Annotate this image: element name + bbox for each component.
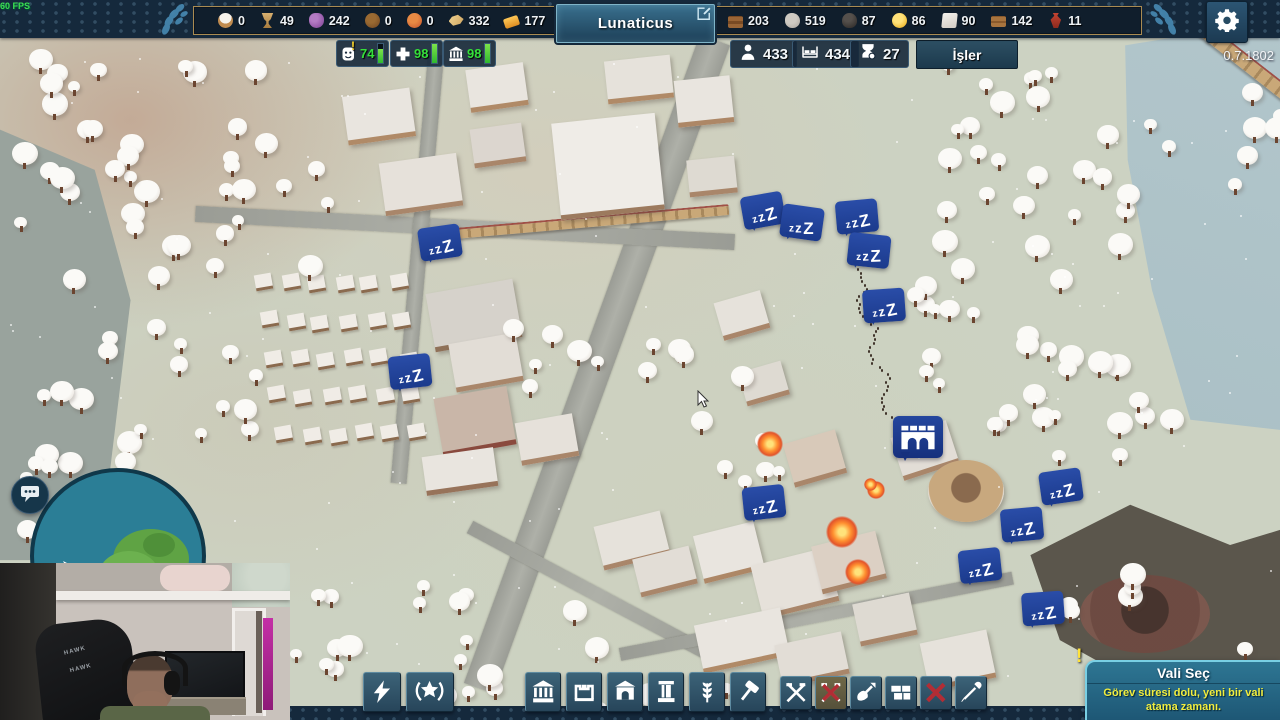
snowy-tree: [174, 338, 187, 350]
snow-speck: [645, 306, 647, 308]
market-stall: [260, 309, 280, 328]
snow-speck: [120, 397, 122, 399]
snow-speck: [418, 663, 420, 665]
sleep-marker[interactable]: zzZ: [417, 223, 463, 262]
snowy-tree: [245, 60, 268, 81]
market-stall: [254, 273, 274, 292]
snowy-tree: [298, 255, 323, 277]
snow-speck: [392, 471, 394, 473]
snowy-tree: [1107, 412, 1133, 435]
snowy-tree: [1129, 392, 1149, 410]
crowd-figure: [873, 334, 875, 337]
city-name-plate: Lunaticus: [556, 4, 715, 43]
snowy-tree: [460, 635, 473, 647]
edit-city-name-icon[interactable]: [697, 7, 711, 21]
bolt-button[interactable]: [363, 672, 401, 712]
snowy-tree: [922, 348, 941, 365]
sleep-marker[interactable]: zzZ: [1038, 467, 1084, 506]
building[interactable]: [422, 447, 499, 496]
shrine-icon: [608, 673, 642, 711]
snowy-tree: [1117, 184, 1140, 205]
snow-speck: [585, 218, 587, 220]
snow-speck: [492, 304, 494, 306]
snow-speck: [1098, 491, 1100, 493]
snow-speck: [366, 652, 368, 654]
column-button[interactable]: [648, 672, 684, 712]
resource-bricks: 142: [991, 14, 1032, 28]
building[interactable]: [783, 429, 847, 487]
market-stall: [348, 385, 368, 404]
snowy-tree: [1237, 642, 1253, 656]
bricks-icon: [991, 16, 1006, 27]
resource-value: 11: [1068, 14, 1081, 28]
building[interactable]: [379, 153, 464, 216]
fire-effect: [845, 559, 871, 585]
market-stall: [344, 348, 364, 367]
snow-speck: [597, 661, 599, 663]
laurel-decoration-icon: [150, 2, 196, 38]
snow-speck: [246, 355, 248, 357]
sleep-marker[interactable]: zzZ: [957, 547, 1002, 584]
sleep-marker[interactable]: zzZ: [846, 232, 891, 269]
crowd-figure: [860, 272, 862, 275]
crowd-figure: [879, 366, 881, 369]
snowy-tree: [42, 92, 68, 115]
snow-speck: [884, 447, 886, 449]
snowy-tree: [1025, 235, 1050, 257]
snowy-tree: [337, 635, 362, 658]
snowy-tree: [990, 91, 1016, 114]
citizens-icon: [739, 43, 757, 66]
snowy-tree: [1028, 70, 1041, 82]
market-stall: [390, 273, 410, 292]
snowy-tree: [68, 81, 81, 92]
demolish-x-icon: [921, 677, 951, 709]
snowy-tree: [1144, 119, 1157, 130]
market-stall: [290, 348, 310, 367]
snow-speck: [1051, 253, 1053, 255]
snow-speck: [896, 141, 898, 143]
snowy-tree: [919, 365, 934, 378]
resource-stone: 519: [785, 13, 826, 28]
building[interactable]: [342, 88, 416, 146]
snowy-tree: [63, 269, 86, 290]
stat-bar: [484, 43, 491, 64]
amphitheater[interactable]: [1080, 575, 1210, 653]
webcam-magenta-object: [263, 618, 273, 710]
snow-speck: [358, 200, 360, 202]
crowd-figure: [864, 284, 866, 287]
market-stall: [316, 351, 336, 370]
aqueduct-alert-marker[interactable]: [893, 416, 943, 458]
market-stall: [406, 423, 426, 442]
snowy-tree: [232, 215, 244, 226]
market-stall: [380, 423, 400, 442]
sleep-marker[interactable]: zzZ: [779, 203, 825, 242]
snow-speck: [351, 582, 353, 584]
health-panel[interactable]: 98: [390, 40, 443, 67]
settings-button[interactable]: [1206, 1, 1248, 43]
snow-speck: [732, 153, 734, 155]
crowd-figure: [886, 389, 888, 392]
snowy-tree: [585, 637, 610, 659]
snowy-tree: [1112, 448, 1127, 462]
snow-speck: [152, 438, 154, 440]
snow-speck: [854, 325, 856, 327]
laurel-decoration-icon: [1142, 2, 1188, 38]
culture-panel[interactable]: 98: [443, 40, 496, 67]
crossed-tools-disabled-icon: [816, 677, 846, 709]
fps-counter: 60 FPS: [0, 1, 30, 11]
building[interactable]: [470, 123, 527, 169]
housing-panel[interactable]: 434: [792, 40, 859, 68]
crowd-figure: [873, 342, 875, 345]
snowy-tree: [255, 133, 278, 153]
snowy-tree: [542, 325, 563, 344]
resource-value: 90: [962, 14, 976, 28]
snow-speck: [1151, 278, 1153, 280]
snowy-tree: [12, 142, 38, 165]
stat-bar: [431, 43, 438, 64]
market-stall: [322, 386, 342, 405]
snowy-tree: [50, 167, 75, 190]
crossed-tools-button[interactable]: [780, 676, 812, 710]
sleep-marker[interactable]: zzZ: [1021, 591, 1065, 627]
resource-value: 86: [912, 14, 926, 28]
snow-speck: [475, 602, 477, 604]
snowy-tree: [167, 235, 190, 256]
wreath-star-button[interactable]: [406, 672, 454, 712]
snow-speck: [161, 198, 163, 200]
toolbar-left-group: [363, 672, 454, 712]
snow-speck: [1103, 305, 1105, 307]
crowd-figure: [887, 385, 889, 388]
snowy-tree: [932, 230, 957, 253]
resource-value: 87: [862, 14, 876, 28]
crowd-figure: [868, 350, 870, 353]
crowd-figure: [861, 280, 863, 283]
picker-icon: [956, 677, 986, 709]
picker-button[interactable]: [955, 676, 987, 710]
resource-fish: 332: [449, 13, 490, 28]
crowd-figure: [889, 377, 891, 380]
snowy-tree: [933, 378, 945, 389]
snow-speck: [328, 502, 330, 504]
jobs-button-label: İşler: [953, 47, 982, 63]
crowd-figure: [860, 276, 862, 279]
snowy-tree: [1068, 209, 1081, 221]
stone-icon: [785, 13, 800, 28]
snowy-tree: [563, 600, 587, 622]
snowy-tree: [591, 356, 603, 367]
market-stall: [274, 425, 294, 444]
market-stall: [267, 385, 287, 404]
snowy-tree: [477, 664, 502, 687]
snowy-tree: [417, 580, 431, 592]
toolbar-build-group: [525, 672, 766, 712]
blocks-button[interactable]: [885, 676, 917, 710]
crowd-figure: [859, 303, 861, 306]
snowy-tree: [1013, 196, 1035, 215]
snowy-tree: [83, 120, 103, 138]
wreath-star-icon: [407, 673, 453, 711]
snowy-tree: [756, 462, 775, 479]
snow-speck: [612, 489, 614, 491]
snowy-tree: [1160, 409, 1184, 431]
walls-button[interactable]: [566, 672, 602, 712]
population-value: 434: [825, 46, 850, 63]
resource-value: 242: [329, 14, 350, 28]
snow-speck: [535, 109, 537, 111]
building[interactable]: [551, 113, 665, 220]
snowy-tree: [1120, 563, 1145, 586]
resource-coin: 86: [892, 13, 926, 28]
crowd-figure: [872, 358, 874, 361]
fire-effect: [826, 516, 858, 548]
amphora-icon: [1048, 13, 1063, 28]
snowy-tree: [124, 171, 137, 183]
crowd-figure: [885, 412, 887, 415]
snow-speck: [485, 258, 487, 260]
crowd-figure: [883, 393, 885, 396]
temple-button[interactable]: [525, 672, 561, 712]
snowy-tree: [1049, 410, 1061, 421]
resource-value: 519: [805, 14, 826, 28]
fire-effect: [757, 431, 783, 457]
snow-speck: [89, 211, 91, 213]
stat-value: 98: [467, 46, 481, 61]
building[interactable]: [674, 75, 735, 128]
snowy-tree: [1040, 342, 1057, 357]
snow-speck: [202, 82, 204, 84]
crowd-figure: [881, 397, 883, 400]
building[interactable]: [694, 607, 790, 673]
sleep-marker[interactable]: zzZ: [862, 288, 906, 324]
notification-title: Vali Seç: [1087, 662, 1280, 684]
market-stall: [302, 427, 322, 446]
snowy-tree: [454, 654, 468, 666]
snow-speck: [554, 586, 556, 588]
market-stall: [354, 423, 374, 442]
waiting-panel[interactable]: 27: [850, 40, 909, 68]
snow-speck: [911, 99, 913, 101]
snow-speck: [71, 102, 73, 104]
resource-olive: 0: [365, 13, 392, 28]
population-value: 27: [883, 46, 900, 63]
market-stall: [339, 314, 359, 333]
snowy-tree: [1052, 450, 1065, 462]
round-theater[interactable]: [928, 460, 1004, 522]
snow-speck: [80, 202, 82, 204]
snowy-tree: [979, 187, 994, 201]
resource-marble: 90: [942, 13, 976, 28]
snow-speck: [316, 548, 318, 550]
snowy-tree: [646, 338, 660, 351]
snow-speck: [1208, 380, 1210, 382]
snowy-tree: [987, 417, 1003, 432]
snowy-tree: [170, 356, 188, 372]
jobs-button[interactable]: İşler: [916, 40, 1018, 69]
snow-speck: [471, 457, 473, 459]
crowd-figure: [874, 338, 876, 341]
crowd-figure: [881, 369, 883, 372]
snowy-tree: [1237, 146, 1258, 165]
shrine-button[interactable]: [607, 672, 643, 712]
hammer-button[interactable]: [730, 672, 766, 712]
snow-speck: [399, 482, 401, 484]
resource-wood: 203: [728, 14, 769, 28]
sleep-marker[interactable]: zzZ: [1000, 506, 1045, 543]
bolt-icon: [364, 673, 400, 711]
snowy-tree: [1026, 86, 1050, 108]
snow-speck: [1117, 292, 1119, 294]
building[interactable]: [465, 62, 528, 113]
snow-speck: [1183, 445, 1185, 447]
resource-iron: 87: [842, 13, 876, 28]
crowd-figure: [887, 373, 889, 376]
snowy-tree: [462, 686, 475, 698]
snow-speck: [677, 76, 679, 78]
coin-icon: [892, 13, 907, 28]
snowy-tree: [938, 148, 962, 169]
snow-speck: [601, 432, 603, 434]
snow-speck: [1108, 171, 1110, 173]
market-stall: [369, 348, 389, 367]
resource-value: 0: [385, 14, 392, 28]
snow-speck: [992, 241, 994, 243]
hammer-icon: [731, 673, 765, 711]
building[interactable]: [686, 156, 738, 198]
snowy-tree: [216, 225, 234, 241]
snowy-tree: [937, 201, 957, 219]
shovel-button[interactable]: [850, 676, 882, 710]
snowy-tree: [105, 160, 125, 178]
crossed-tools-disabled-button[interactable]: [815, 676, 847, 710]
stat-value: 98: [414, 46, 428, 61]
snow-speck: [481, 191, 483, 193]
snowy-tree: [970, 145, 987, 160]
material-resources-group: 20351987869014211: [728, 7, 1082, 34]
snow-speck: [803, 292, 805, 294]
snowy-tree: [1058, 361, 1077, 378]
happiness-panel[interactable]: !74: [336, 40, 389, 67]
food-resources-group: 04924200332177: [218, 7, 545, 34]
building[interactable]: [433, 386, 516, 457]
crowd-figure: [859, 311, 861, 314]
snowy-tree: [134, 180, 160, 203]
population-value: 433: [763, 46, 788, 63]
webcam-shelf: [56, 591, 290, 600]
snow-speck: [741, 602, 743, 604]
chat-button[interactable]: [11, 476, 49, 514]
alert-mark: !: [351, 39, 355, 53]
walls-icon: [567, 673, 601, 711]
resource-value: 0: [238, 14, 245, 28]
snowy-tree: [308, 161, 326, 177]
snow-speck: [1032, 118, 1034, 120]
snow-speck: [137, 91, 139, 93]
snowy-tree: [1045, 67, 1058, 79]
snowy-tree: [529, 359, 542, 370]
crowd-figure: [858, 295, 860, 298]
crowd-figure: [871, 362, 873, 365]
olive-icon: [365, 13, 380, 28]
resource-value: 203: [748, 14, 769, 28]
building[interactable]: [714, 290, 771, 341]
market-stall: [282, 273, 302, 292]
crowd-figure: [883, 405, 885, 408]
snowy-tree: [321, 197, 334, 209]
wheat-button[interactable]: [689, 672, 725, 712]
toolbar-tools-group: [780, 676, 987, 710]
sleep-marker[interactable]: zzZ: [387, 353, 432, 390]
snow-speck: [805, 633, 807, 635]
snow-speck: [262, 338, 264, 340]
resource-value: 49: [280, 14, 294, 28]
grapes-icon: [309, 13, 324, 28]
wheat-icon: [690, 673, 724, 711]
snow-speck: [1052, 371, 1054, 373]
snowy-tree: [773, 466, 785, 477]
snow-speck: [709, 613, 711, 615]
crowd-figure: [858, 307, 860, 310]
webcam-person-shirt: [100, 706, 210, 720]
resource-amphora: 11: [1048, 13, 1081, 28]
demolish-x-button[interactable]: [920, 676, 952, 710]
citizens-panel[interactable]: 433: [730, 40, 797, 68]
snowy-tree: [1088, 351, 1113, 374]
snowy-tree: [413, 597, 426, 609]
governor-notification[interactable]: Vali Seç Görev süresi dolu, yeni bir val…: [1085, 660, 1280, 720]
snowy-tree: [967, 307, 980, 319]
snowy-tree: [1050, 269, 1073, 289]
snow-speck: [916, 562, 918, 564]
snow-speck: [934, 527, 936, 529]
snow-speck: [1045, 119, 1047, 121]
snowy-tree: [674, 345, 695, 364]
snow-speck: [12, 330, 14, 332]
sleep-marker[interactable]: zzZ: [835, 198, 880, 235]
goldbar-icon: [503, 15, 520, 29]
snow-speck: [1270, 570, 1272, 572]
snow-speck: [875, 385, 877, 387]
snowy-tree: [1162, 140, 1176, 153]
snowy-tree: [951, 258, 975, 280]
market-stall: [368, 312, 388, 331]
snow-speck: [606, 438, 608, 440]
column-icon: [649, 673, 683, 711]
snow-speck: [518, 587, 520, 589]
snow-speck: [425, 432, 427, 434]
snowy-tree: [991, 153, 1006, 166]
resource-flour: 0: [218, 13, 245, 28]
snow-speck: [288, 62, 290, 64]
resource-goldbar: 177: [504, 14, 545, 28]
snow-speck: [10, 324, 12, 326]
snowy-tree: [567, 340, 592, 362]
waiting-icon: [859, 43, 877, 66]
crowd-figure: [870, 354, 872, 357]
sleep-marker[interactable]: zzZ: [741, 484, 786, 521]
snowy-tree: [147, 319, 165, 335]
snowy-tree: [134, 424, 147, 435]
webcam-headset-earcup: [164, 671, 180, 695]
snow-speck: [347, 95, 349, 97]
snowy-tree: [290, 649, 302, 660]
snowy-tree: [206, 258, 224, 274]
fruit-icon: [407, 13, 422, 28]
snowy-tree: [40, 73, 63, 94]
